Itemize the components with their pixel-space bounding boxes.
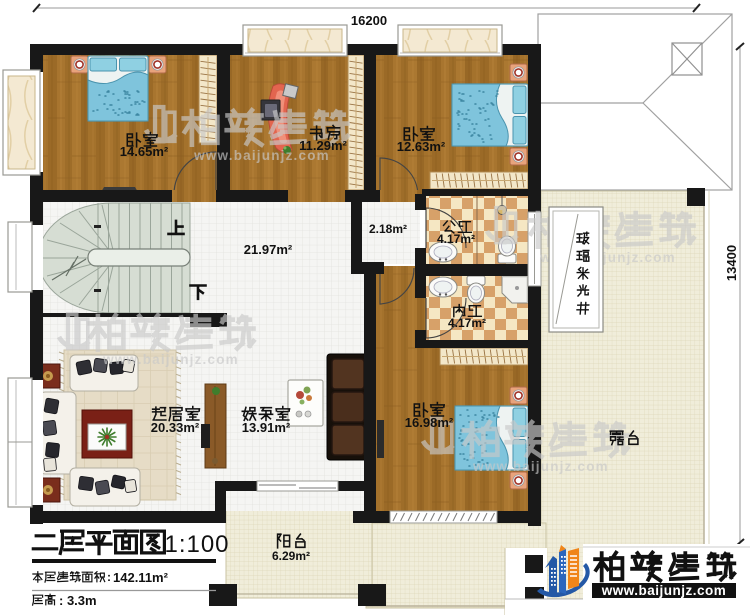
svg-text:1:100: 1:100 xyxy=(164,531,229,558)
svg-text:142.11m²: 142.11m² xyxy=(113,570,169,585)
svg-text:: 3.3m: : 3.3m xyxy=(59,593,97,608)
svg-text::: : xyxy=(107,570,111,584)
svg-text:16200: 16200 xyxy=(351,13,387,28)
svg-text:2.18m²: 2.18m² xyxy=(369,222,407,236)
svg-text:21.97m²: 21.97m² xyxy=(244,242,293,257)
svg-text:20.33m²: 20.33m² xyxy=(151,420,200,435)
svg-text:www.baijunjz.com: www.baijunjz.com xyxy=(601,583,727,598)
svg-text:6.29m²: 6.29m² xyxy=(272,549,310,563)
svg-text:13400: 13400 xyxy=(724,245,739,281)
svg-text:4.17m²: 4.17m² xyxy=(437,232,475,246)
svg-text:www.baijunjz.com: www.baijunjz.com xyxy=(102,352,239,367)
svg-text:4.17m²: 4.17m² xyxy=(448,316,486,330)
svg-text:14.65m²: 14.65m² xyxy=(120,144,169,159)
svg-text:12.63m²: 12.63m² xyxy=(397,139,446,154)
svg-text:11.29m²: 11.29m² xyxy=(299,138,347,153)
svg-text:13.91m²: 13.91m² xyxy=(242,420,291,435)
svg-text:www.baijunjz.com: www.baijunjz.com xyxy=(472,459,609,474)
svg-text:16.98m²: 16.98m² xyxy=(405,415,454,430)
